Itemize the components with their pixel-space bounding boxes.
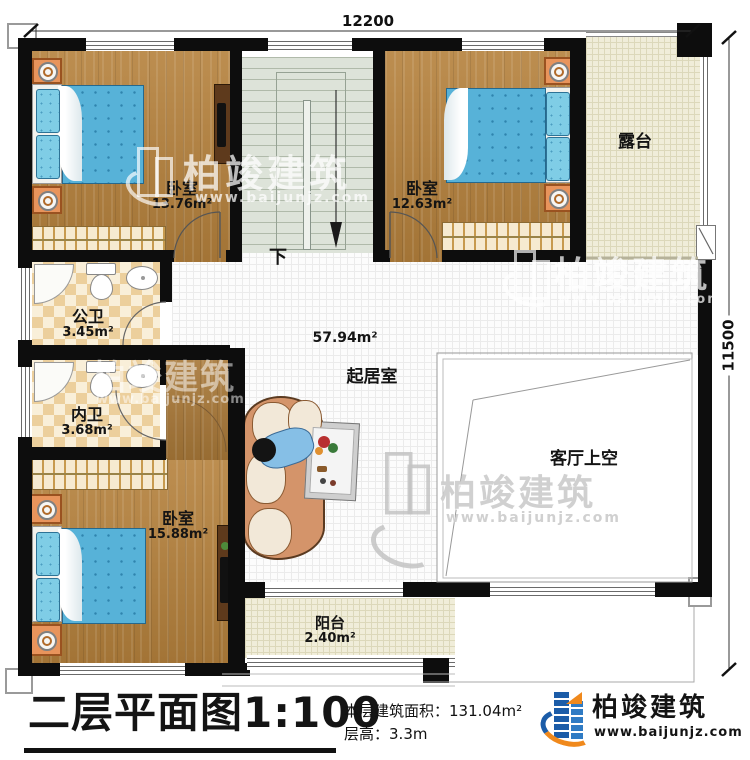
nightstand: [32, 186, 62, 214]
pillow: [36, 532, 60, 576]
wall: [160, 440, 166, 447]
room-label-living: 起居室: [334, 368, 410, 387]
wall: [20, 447, 166, 460]
wall: [373, 250, 390, 262]
wall: [174, 38, 268, 51]
window: [18, 268, 32, 340]
watermark-logo-icon: [502, 250, 548, 306]
watermark-url: www.baijunjz.com: [195, 190, 370, 206]
room-area-balcony: 2.40m²: [298, 632, 362, 646]
dimension-right: 11500: [722, 316, 737, 376]
room-label-public-bath: 公卫: [58, 308, 118, 326]
tv-icon: [217, 103, 226, 147]
window: [18, 367, 32, 437]
watermark: 柏竣建筑 www.baijunjz.com: [502, 246, 730, 312]
room-area-living: 57.94m²: [310, 331, 380, 346]
corner-column: [677, 23, 712, 57]
nightstand: [544, 184, 572, 212]
brand-name: 柏竣建筑: [592, 694, 718, 723]
wall: [18, 38, 32, 268]
watermark-url: www.baijunjz.com: [446, 510, 621, 526]
floor-height-value: 3.3m: [389, 725, 427, 743]
wall: [18, 663, 60, 676]
watermark: 柏竣建筑 www.baijunjz.com: [370, 452, 610, 547]
wall: [403, 582, 490, 597]
room-area-private-bath: 3.68m²: [54, 424, 120, 438]
floor-plan-canvas: 卧室 13.76m² 卧室 12.63m² 露台 公卫 3.45m² 内卫 3.…: [0, 0, 750, 760]
wall: [160, 262, 172, 302]
floor-area-line: 本层建筑面积：131.04m²: [344, 700, 554, 723]
sink-icon: [126, 266, 158, 290]
lamp-icon: [37, 500, 57, 520]
dimension-top: 12200: [336, 14, 400, 29]
room-label-balcony: 阳台: [300, 615, 360, 632]
flowers-icon: [315, 447, 323, 455]
toilet-bowl: [90, 274, 113, 300]
watermark-url: www.baijunjz.com: [558, 292, 723, 307]
pillow: [36, 135, 60, 179]
pillow: [546, 92, 570, 136]
wall: [352, 38, 462, 51]
flowers-icon: [328, 443, 338, 453]
terrace-railing: [700, 57, 708, 225]
bed-sheet: [58, 86, 82, 181]
corner-column: [423, 658, 449, 683]
bed-sheet: [444, 88, 468, 180]
terrace-parapet: [586, 32, 677, 37]
wall: [20, 250, 174, 262]
room-area-public-bath: 3.45m²: [55, 326, 121, 340]
window: [265, 585, 403, 597]
nightstand: [32, 58, 62, 84]
closet: [32, 458, 168, 490]
room-label-terrace: 露台: [603, 133, 667, 152]
wall: [245, 582, 265, 598]
wall: [655, 582, 700, 597]
pillow: [36, 89, 60, 133]
person-head: [252, 438, 276, 462]
brand-logo-icon: [540, 692, 588, 748]
nightstand: [544, 57, 572, 85]
floor-height-label: 层高：: [344, 725, 389, 743]
room-area-bedroom-tr: 12.63m²: [386, 198, 458, 212]
lamp-icon: [37, 631, 57, 651]
pillow: [546, 137, 570, 181]
watermark-url: www.baijunjz.com: [96, 392, 245, 407]
wall: [226, 250, 242, 262]
lamp-icon: [38, 62, 58, 82]
table-item: [317, 466, 327, 472]
nightstand: [30, 494, 62, 524]
sofa-cushion: [248, 508, 292, 556]
watermark: 柏竣建筑 www.baijunjz.com: [92, 350, 262, 410]
window: [490, 584, 655, 596]
wall: [18, 437, 32, 675]
room-label-bedroom-tr: 卧室: [390, 180, 454, 198]
watermark-name: 柏竣建筑: [440, 464, 596, 516]
room-area-bedroom-bl: 15.88m²: [142, 528, 214, 542]
page-title: 二层平面图1:100: [28, 690, 338, 736]
watermark-logo-icon: [125, 147, 177, 205]
wall: [570, 38, 586, 262]
watermark-logo-icon: [370, 452, 450, 567]
table-item: [320, 478, 326, 484]
wall: [185, 663, 250, 676]
brand-website: www.baijunjz.com: [594, 726, 720, 740]
title-underline: [24, 748, 336, 753]
stair-down-label: 下: [266, 248, 290, 268]
lamp-icon: [38, 191, 58, 211]
nightstand: [30, 624, 62, 656]
table-item: [330, 480, 336, 486]
floor-area-value: 131.04m²: [449, 702, 522, 720]
window: [86, 38, 174, 51]
title-info: 本层建筑面积：131.04m² 层高：3.3m: [344, 700, 554, 745]
window: [462, 38, 544, 51]
lamp-icon: [549, 62, 569, 82]
window: [60, 663, 185, 676]
bed-sheet: [58, 529, 82, 621]
floor-area-label: 本层建筑面积：: [344, 702, 449, 720]
window: [268, 38, 352, 51]
pillow: [36, 578, 60, 622]
lamp-icon: [549, 189, 569, 209]
watermark: 柏竣建筑 www.baijunjz.com: [125, 143, 375, 213]
watermark-name: 柏竣建筑: [554, 246, 710, 298]
room-label-bedroom-bl: 卧室: [146, 510, 210, 528]
brand-block: 柏竣建筑 www.baijunjz.com: [540, 690, 720, 752]
floor-height-line: 层高：3.3m: [344, 723, 554, 746]
